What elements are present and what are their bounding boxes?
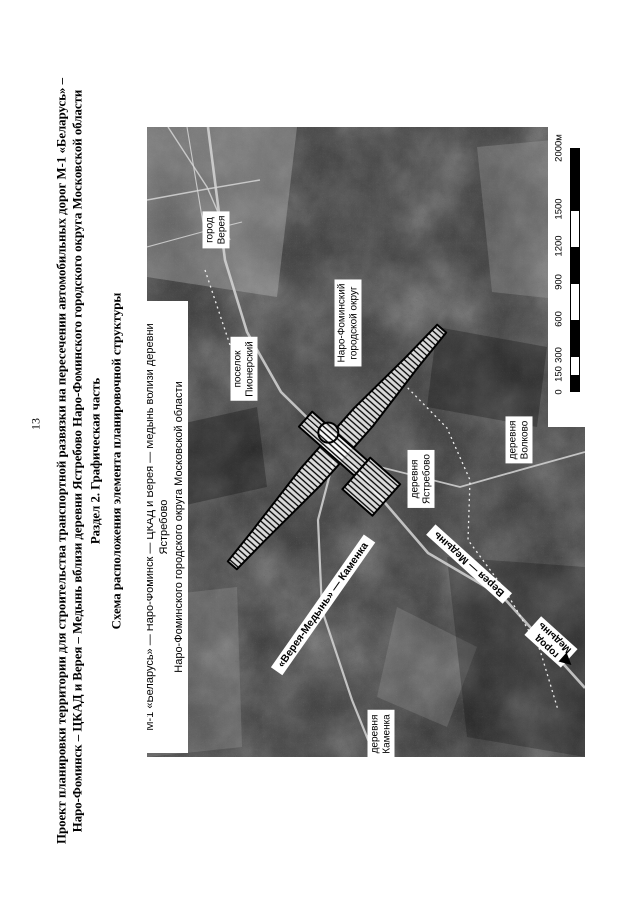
document-page: 13 Проект планировки территории для стро… xyxy=(0,0,639,905)
map-title-line2: М-1 «Беларусь» — Наро-Фоминск — ЦКАД и В… xyxy=(147,301,172,753)
document-title-line4: Схема расположения элемента планировочно… xyxy=(109,21,125,901)
scale-tick-label-0: 0 xyxy=(554,389,565,394)
scale-segment xyxy=(571,375,579,391)
label-line: поселок xyxy=(233,341,245,397)
label-poselok-pionerskiy: поселок Пионерский xyxy=(231,337,258,401)
scale-bar-ruler xyxy=(570,148,580,392)
scale-tick-label-2000: 2000м xyxy=(554,134,565,162)
label-line: Волково xyxy=(519,421,531,460)
label-line: Пионерский xyxy=(244,341,256,397)
map-title-line3: Наро-Фоминского городского округа Москов… xyxy=(172,301,187,753)
scale-segment xyxy=(571,247,579,283)
document-title-line3: Раздел 2. Графическая часть xyxy=(88,21,104,901)
label-line: Верея xyxy=(216,216,228,245)
document-title-line2: Наро-Фоминск – ЦКАД и Верея – Медынь вбл… xyxy=(70,21,86,901)
page-number: 13 xyxy=(29,418,44,430)
label-line: деревня xyxy=(410,454,422,504)
document-title: Проект планировки территории для строите… xyxy=(54,21,125,901)
label-line: Наро-Фоминский xyxy=(337,284,349,363)
label-line: Ястребово xyxy=(421,454,433,504)
scale-tick-label-150: 150 xyxy=(554,366,565,382)
scale-tick-label-300: 300 xyxy=(554,347,565,363)
scale-tick-label-600: 600 xyxy=(554,311,565,327)
scale-tick-label-1500: 1500 xyxy=(554,198,565,219)
label-naro-fominskiy-okrug: Наро-Фоминский городской округ xyxy=(335,280,362,367)
scale-divider xyxy=(571,210,579,211)
document-title-line1: Проект планировки территории для строите… xyxy=(54,21,70,901)
label-derevnya-kamenka: деревня Каменка xyxy=(368,710,395,758)
label-gorod-vereya: город Верея xyxy=(203,212,230,249)
label-derevnya-volkovo: деревня Волково xyxy=(506,417,533,464)
scale-tick-label-1200: 1200 xyxy=(554,235,565,256)
scale-segment xyxy=(571,149,579,210)
scale-divider xyxy=(571,283,579,284)
scale-divider xyxy=(571,356,579,357)
label-line: деревня xyxy=(370,714,382,754)
scale-divider xyxy=(571,320,579,321)
label-derevnya-yastrebovo: деревня Ястребово xyxy=(408,450,435,508)
label-line: город xyxy=(205,216,217,245)
label-line: Каменка xyxy=(381,714,393,754)
scale-tick-label-900: 900 xyxy=(554,274,565,290)
scale-divider xyxy=(571,375,579,376)
scale-divider xyxy=(571,247,579,248)
label-line: деревня xyxy=(508,421,520,460)
scale-segment xyxy=(571,320,579,356)
label-line: городской округ xyxy=(348,284,360,363)
map-title: Участок строительства транспортной развя… xyxy=(147,301,188,753)
